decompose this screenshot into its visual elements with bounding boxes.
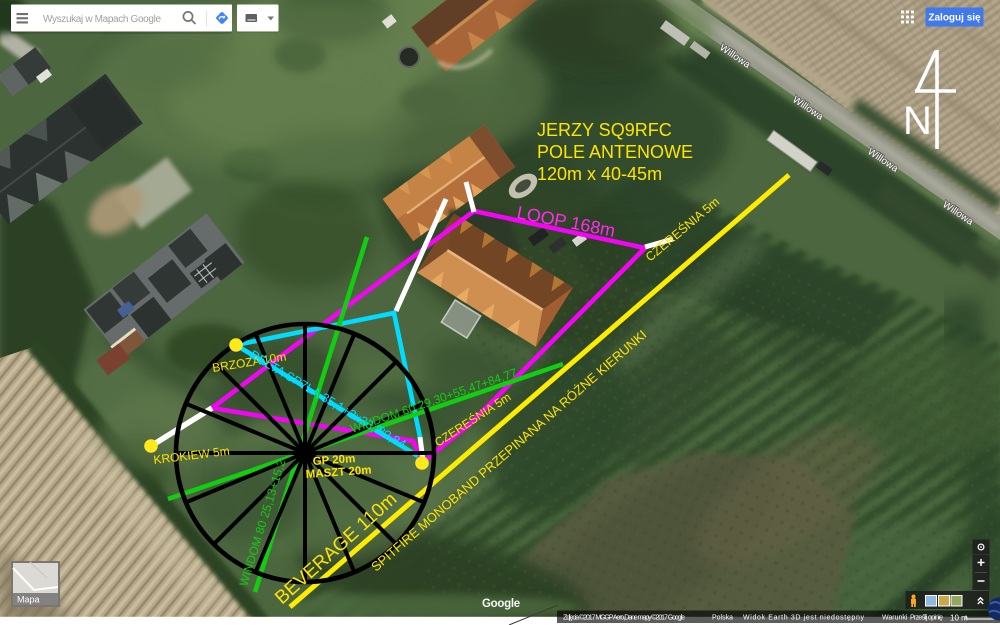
svg-text:120m x 40-45m: 120m x 40-45m — [537, 164, 662, 184]
svg-text:Google: Google — [482, 598, 520, 610]
svg-text:Zdjęcia ©2017 MGGP Aero,Dane m: Zdjęcia ©2017 MGGP Aero,Dane mapy ©2017 … — [563, 614, 685, 622]
svg-text:Polska: Polska — [712, 615, 733, 622]
svg-text:POLE ANTENOWE: POLE ANTENOWE — [537, 142, 693, 162]
svg-text:Prześlij opinię: Prześlij opinię — [910, 615, 943, 622]
svg-text:JERZY SQ9RFC: JERZY SQ9RFC — [537, 120, 672, 140]
svg-text:N: N — [903, 99, 932, 143]
svg-text:Zaloguj się: Zaloguj się — [928, 13, 981, 24]
svg-text:Wyszukaj w Mapach Google: Wyszukaj w Mapach Google — [43, 14, 161, 25]
svg-text:Warunki: Warunki — [882, 615, 908, 622]
svg-text:Widok Earth 3D jest niedostępn: Widok Earth 3D jest niedostępny — [743, 615, 865, 622]
svg-text:Mapa: Mapa — [17, 595, 40, 605]
